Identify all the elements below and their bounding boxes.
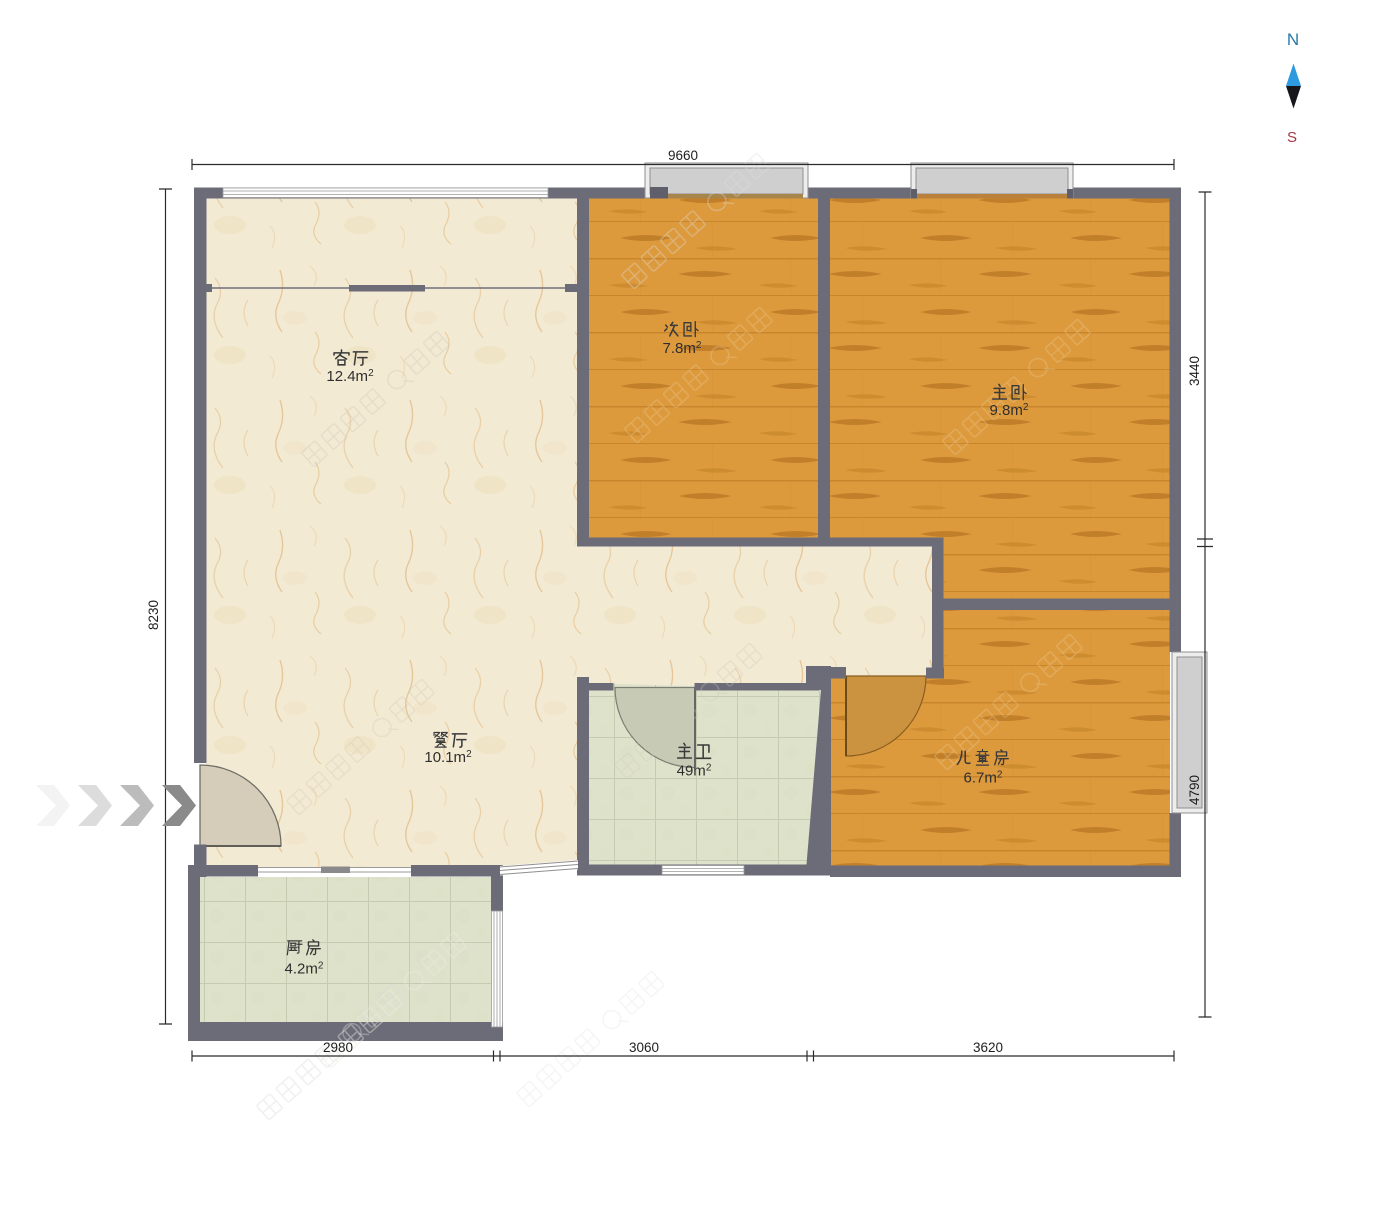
svg-text:4790: 4790 [1187, 775, 1202, 805]
svg-text:8230: 8230 [146, 600, 161, 630]
svg-text:3440: 3440 [1187, 356, 1202, 386]
svg-text:12.4m2: 12.4m2 [326, 368, 374, 385]
svg-text:9660: 9660 [668, 148, 698, 163]
svg-text:S: S [1287, 129, 1297, 146]
svg-text:N: N [1287, 30, 1299, 49]
svg-text:3620: 3620 [973, 1040, 1003, 1055]
svg-text:10.1m2: 10.1m2 [424, 749, 472, 766]
svg-text:3060: 3060 [629, 1040, 659, 1055]
svg-text:2980: 2980 [323, 1040, 353, 1055]
